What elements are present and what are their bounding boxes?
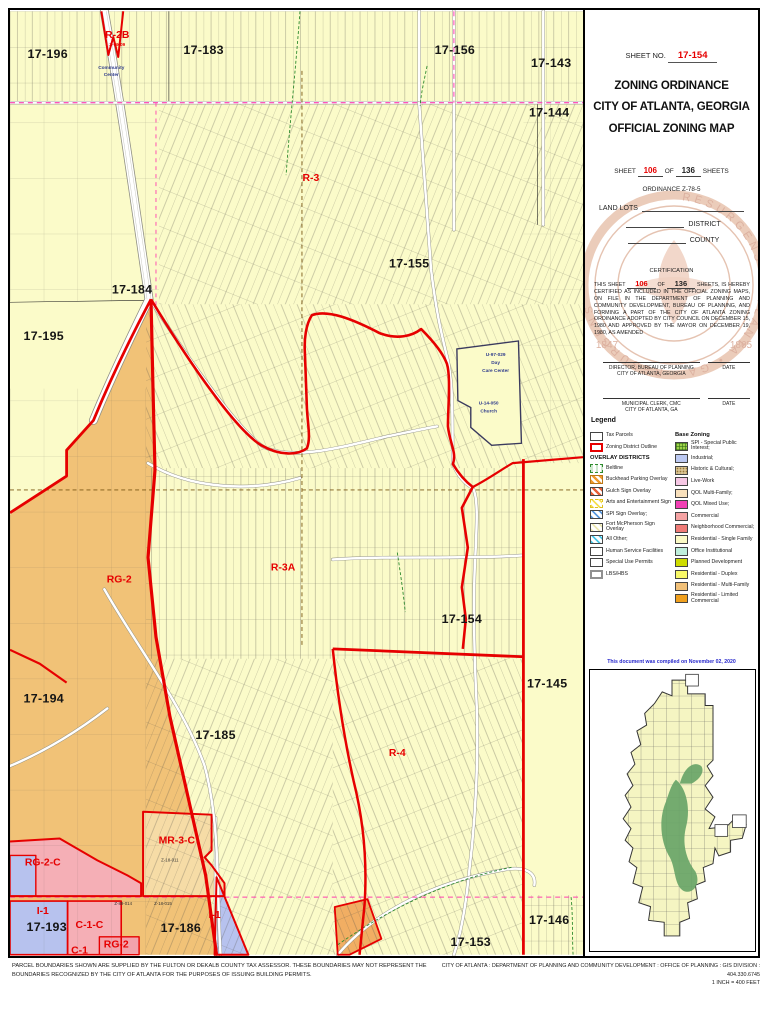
signature-block-director: DIRECTOR, BUREAU OF PLANNING CITY OF ATL… xyxy=(603,362,750,378)
legend-swatch xyxy=(675,547,688,556)
map-label: 17-143 xyxy=(531,56,571,70)
map-label: C-1 xyxy=(71,946,88,956)
legend-swatch xyxy=(675,535,688,544)
legend-swatch xyxy=(590,547,603,556)
land-lots-label: LAND LOTS xyxy=(599,205,638,212)
legend-top-list: Tax ParcelsZoning District Outline xyxy=(590,432,672,453)
map-label: 17-144 xyxy=(529,106,569,120)
sheet-count-line: SHEET 106 OF 136 SHEETS xyxy=(585,166,758,175)
footer-scale: 1 INCH = 400 FEET xyxy=(420,979,760,988)
map-label: Care Center xyxy=(482,368,509,374)
legend-swatch xyxy=(590,523,603,532)
legend-item: Office Institutional xyxy=(675,547,756,556)
title-line-1: ZONING ORDINANCE xyxy=(585,76,758,97)
map-label: 17-195 xyxy=(24,329,64,343)
parcel-pattern xyxy=(10,11,583,954)
map-label: 17-186 xyxy=(161,921,201,935)
index-map-graphic xyxy=(590,670,754,950)
sheet-label: SHEET xyxy=(614,168,636,175)
base-zoning-heading: Base Zoning xyxy=(675,432,756,438)
legend-item-label: Residential - Multi-Family xyxy=(691,583,749,588)
cert-pre: THIS SHEET xyxy=(594,282,625,288)
legend-item-label: Residential - Duplex xyxy=(691,572,737,577)
sig2-title: MUNICIPAL CLERK, CMC xyxy=(603,401,700,408)
legend-item: Beltline xyxy=(590,464,672,473)
legend-swatch xyxy=(675,594,688,603)
overlay-district-list: BeltlineBuckhead Parking OverlayGulch Si… xyxy=(590,464,672,579)
map-label: Z-09-09 xyxy=(109,42,125,47)
map-label: 17-145 xyxy=(527,677,567,691)
legend-swatch xyxy=(675,454,688,463)
legend-item: Residential - Single Family xyxy=(675,535,756,544)
certification-text: THIS SHEET 106 OF 136 SHEETS, IS HEREBY … xyxy=(594,279,750,337)
legend-swatch xyxy=(590,432,603,441)
map-label: 17-146 xyxy=(529,913,569,927)
legend-item-label: Live-Work xyxy=(691,479,714,484)
cert-sheet-total: 136 xyxy=(667,279,696,289)
sheet-no-label: SHEET NO. xyxy=(626,51,666,60)
legend-title: Legend xyxy=(591,417,616,424)
map-label: 17-156 xyxy=(435,43,475,57)
legend-item: Special Use Permits xyxy=(590,558,672,567)
map-label: Z-89-014 xyxy=(114,901,132,906)
legend-item: SPI - Special Public Interest; xyxy=(675,441,756,452)
legend-item-label: Historic & Cultural; xyxy=(691,467,734,472)
legend-item: Residential - Duplex xyxy=(675,570,756,579)
legend-item: Residential - Multi-Family xyxy=(675,582,756,591)
compiled-note: This document was compiled on November 0… xyxy=(585,659,758,665)
district-label: DISTRICT xyxy=(688,221,720,228)
legend-swatch xyxy=(590,558,603,567)
ordinance-number: ORDINANCE Z-78-5 xyxy=(585,186,758,193)
map-label: RG-2 xyxy=(104,940,129,951)
map-title: ZONING ORDINANCE CITY OF ATLANTA, GEORGI… xyxy=(585,76,758,140)
legend-item: Live-Work xyxy=(675,477,756,486)
legend-item-label: SPI - Special Public Interest; xyxy=(691,441,756,452)
legend: Tax ParcelsZoning District Outline OVERL… xyxy=(590,429,756,607)
legend-item-label: Neighborhood Commercial; xyxy=(691,525,754,530)
sheet-current: 106 xyxy=(638,166,663,177)
legend-item: All Other; xyxy=(590,535,672,544)
legend-swatch xyxy=(590,464,603,473)
map-label: 17-196 xyxy=(28,47,68,61)
map-label: R-4 xyxy=(389,748,406,759)
overlay-districts-heading: OVERLAY DISTRICTS xyxy=(590,455,672,461)
legend-swatch xyxy=(675,512,688,521)
legend-swatch xyxy=(590,443,603,452)
map-label: 17-184 xyxy=(112,282,152,296)
legend-swatch xyxy=(675,582,688,591)
sig2-date-label: DATE xyxy=(708,398,750,414)
map-label: Community xyxy=(98,65,124,71)
legend-swatch xyxy=(590,535,603,544)
map-label: Center xyxy=(104,72,119,78)
legend-item-label: SPI Sign Overlay; xyxy=(606,512,647,517)
legend-item: Commercial xyxy=(675,512,756,521)
legend-item-label: Special Use Permits xyxy=(606,560,653,565)
map-label: U-97-029 xyxy=(486,352,506,358)
legend-item-label: Human Service Facilities xyxy=(606,549,663,554)
legend-item: Fort McPherson Sign Overlay xyxy=(590,522,672,533)
legend-item: Neighborhood Commercial; xyxy=(675,524,756,533)
map-label: R-2B xyxy=(105,30,130,41)
sig1-org: CITY OF ATLANTA, GEORGIA xyxy=(603,371,700,378)
legend-item-label: Industrial; xyxy=(691,456,714,461)
cert-of: OF xyxy=(658,282,665,288)
legend-swatch xyxy=(675,477,688,486)
legend-item-label: Beltline xyxy=(606,466,623,471)
legend-swatch xyxy=(590,510,603,519)
cert-sheet-current: 106 xyxy=(627,279,656,289)
map-label: RG-2-C xyxy=(25,857,61,868)
footer-credits: CITY OF ATLANTA : DEPARTMENT OF PLANNING… xyxy=(420,962,760,988)
legend-swatch xyxy=(590,499,603,508)
legend-item: Zoning District Outline xyxy=(590,443,672,452)
sig2-org: CITY OF ATLANTA, GA xyxy=(603,407,700,414)
legend-swatch xyxy=(590,487,603,496)
map-label: Church xyxy=(480,408,497,414)
legend-item: Buckhead Parking Overlay xyxy=(590,475,672,484)
legend-item-label: Commercial xyxy=(691,514,719,519)
cert-post: SHEETS, IS HEREBY CERTIFIED AS INCLUDED … xyxy=(594,282,750,336)
legend-swatch xyxy=(675,466,688,475)
legend-item-label: QOL Mixed Use; xyxy=(691,502,729,507)
legend-item: Planned Development xyxy=(675,558,756,567)
map-area: 17-19617-18317-15617-14317-14417-15517-1… xyxy=(10,10,583,956)
legend-item-label: Office Institutional xyxy=(691,549,732,554)
map-label: R-3 xyxy=(303,173,320,184)
map-label: Z-18-011 xyxy=(161,857,179,862)
legend-swatch xyxy=(675,489,688,498)
sheet-index-map xyxy=(589,669,756,952)
legend-item: Human Service Facilities xyxy=(590,547,672,556)
legend-swatch xyxy=(675,524,688,533)
legend-item: Tax Parcels xyxy=(590,432,672,441)
legend-swatch xyxy=(590,570,603,579)
map-label: MR-3-C xyxy=(159,835,196,846)
map-label: C-1-C xyxy=(76,920,104,931)
legend-swatch xyxy=(675,570,688,579)
svg-text:1847: 1847 xyxy=(596,340,619,351)
title-line-3: OFFICIAL ZONING MAP xyxy=(585,119,758,140)
legend-item: Residential - Limited Commercial xyxy=(675,593,756,604)
legend-swatch xyxy=(675,442,688,451)
footer-disclaimer: PARCEL BOUNDARIES SHOWN ARE SUPPLIED BY … xyxy=(12,962,464,980)
legend-item: LBS/HBS xyxy=(590,570,672,579)
legend-swatch xyxy=(675,558,688,567)
sheet-total: 136 xyxy=(676,166,701,177)
legend-swatch xyxy=(590,475,603,484)
map-label: R-3A xyxy=(271,562,296,573)
footer-credit-line: CITY OF ATLANTA : DEPARTMENT OF PLANNING… xyxy=(420,962,760,979)
of-label: OF xyxy=(665,168,674,175)
legend-item: QOL Multi-Family; xyxy=(675,489,756,498)
map-label: 17-154 xyxy=(442,612,482,626)
zoning-map: 17-19617-18317-15617-14317-14417-15517-1… xyxy=(10,10,583,956)
county-label: COUNTY xyxy=(690,237,720,244)
legend-item-label: Zoning District Outline xyxy=(606,445,657,450)
legend-item: Arts and Entertainment Sign xyxy=(590,499,672,508)
legend-item-label: Arts and Entertainment Sign xyxy=(606,500,671,505)
map-label: RG-2 xyxy=(107,574,132,585)
legend-item-label: All Other; xyxy=(606,537,628,542)
map-label: 17-155 xyxy=(389,257,429,271)
legend-item-label: LBS/HBS xyxy=(606,572,628,577)
map-label: Z-18-015 xyxy=(154,901,172,906)
legend-item-label: Residential - Limited Commercial xyxy=(691,593,756,604)
legend-item-label: Gulch Sign Overlay xyxy=(606,489,651,494)
sheet-no-value: 17-154 xyxy=(668,50,718,63)
map-label: U-14-050 xyxy=(479,401,499,407)
legend-item: SPI Sign Overlay; xyxy=(590,510,672,519)
sig1-date-label: DATE xyxy=(708,362,750,378)
sheets-label: SHEETS xyxy=(703,168,729,175)
legend-item: Historic & Cultural; xyxy=(675,466,756,475)
map-label: 17-153 xyxy=(451,935,491,949)
certification-heading: CERTIFICATION xyxy=(585,268,758,274)
legend-item: QOL Mixed Use; xyxy=(675,500,756,509)
legend-item-label: Fort McPherson Sign Overlay xyxy=(606,522,672,533)
legend-item-label: Residential - Single Family xyxy=(691,537,752,542)
legend-item-label: QOL Multi-Family; xyxy=(691,491,733,496)
legend-item-label: Buckhead Parking Overlay xyxy=(606,477,667,482)
zoning-map-sheet: 17-19617-18317-15617-14317-14417-15517-1… xyxy=(8,8,760,958)
legend-item-label: Planned Development xyxy=(691,560,742,565)
legend-item-label: Tax Parcels xyxy=(606,433,633,438)
legend-swatch xyxy=(675,500,688,509)
land-lots-block: LAND LOTS DISTRICT COUNTY xyxy=(599,204,748,252)
base-zoning-list: SPI - Special Public Interest;Industrial… xyxy=(675,441,756,605)
legend-item: Gulch Sign Overlay xyxy=(590,487,672,496)
legend-item: Industrial; xyxy=(675,454,756,463)
map-label: 17-194 xyxy=(24,691,64,705)
map-label: 17-193 xyxy=(27,920,67,934)
map-label: 17-183 xyxy=(183,43,223,57)
map-label: I-1 xyxy=(208,910,220,921)
title-line-2: CITY OF ATLANTA, GEORGIA xyxy=(585,97,758,118)
title-block-panel: RESURGENS • ATLANTA • GA • RESURGENS 184… xyxy=(583,10,758,956)
map-label: 17-185 xyxy=(195,728,235,742)
sig1-title: DIRECTOR, BUREAU OF PLANNING xyxy=(603,365,700,372)
map-label: I-1 xyxy=(37,906,49,917)
map-label: Day xyxy=(491,360,500,366)
svg-text:1865: 1865 xyxy=(730,340,753,351)
signature-block-clerk: MUNICIPAL CLERK, CMC CITY OF ATLANTA, GA… xyxy=(603,398,750,414)
sheet-number-line: SHEET NO. 17-154 xyxy=(585,50,758,61)
